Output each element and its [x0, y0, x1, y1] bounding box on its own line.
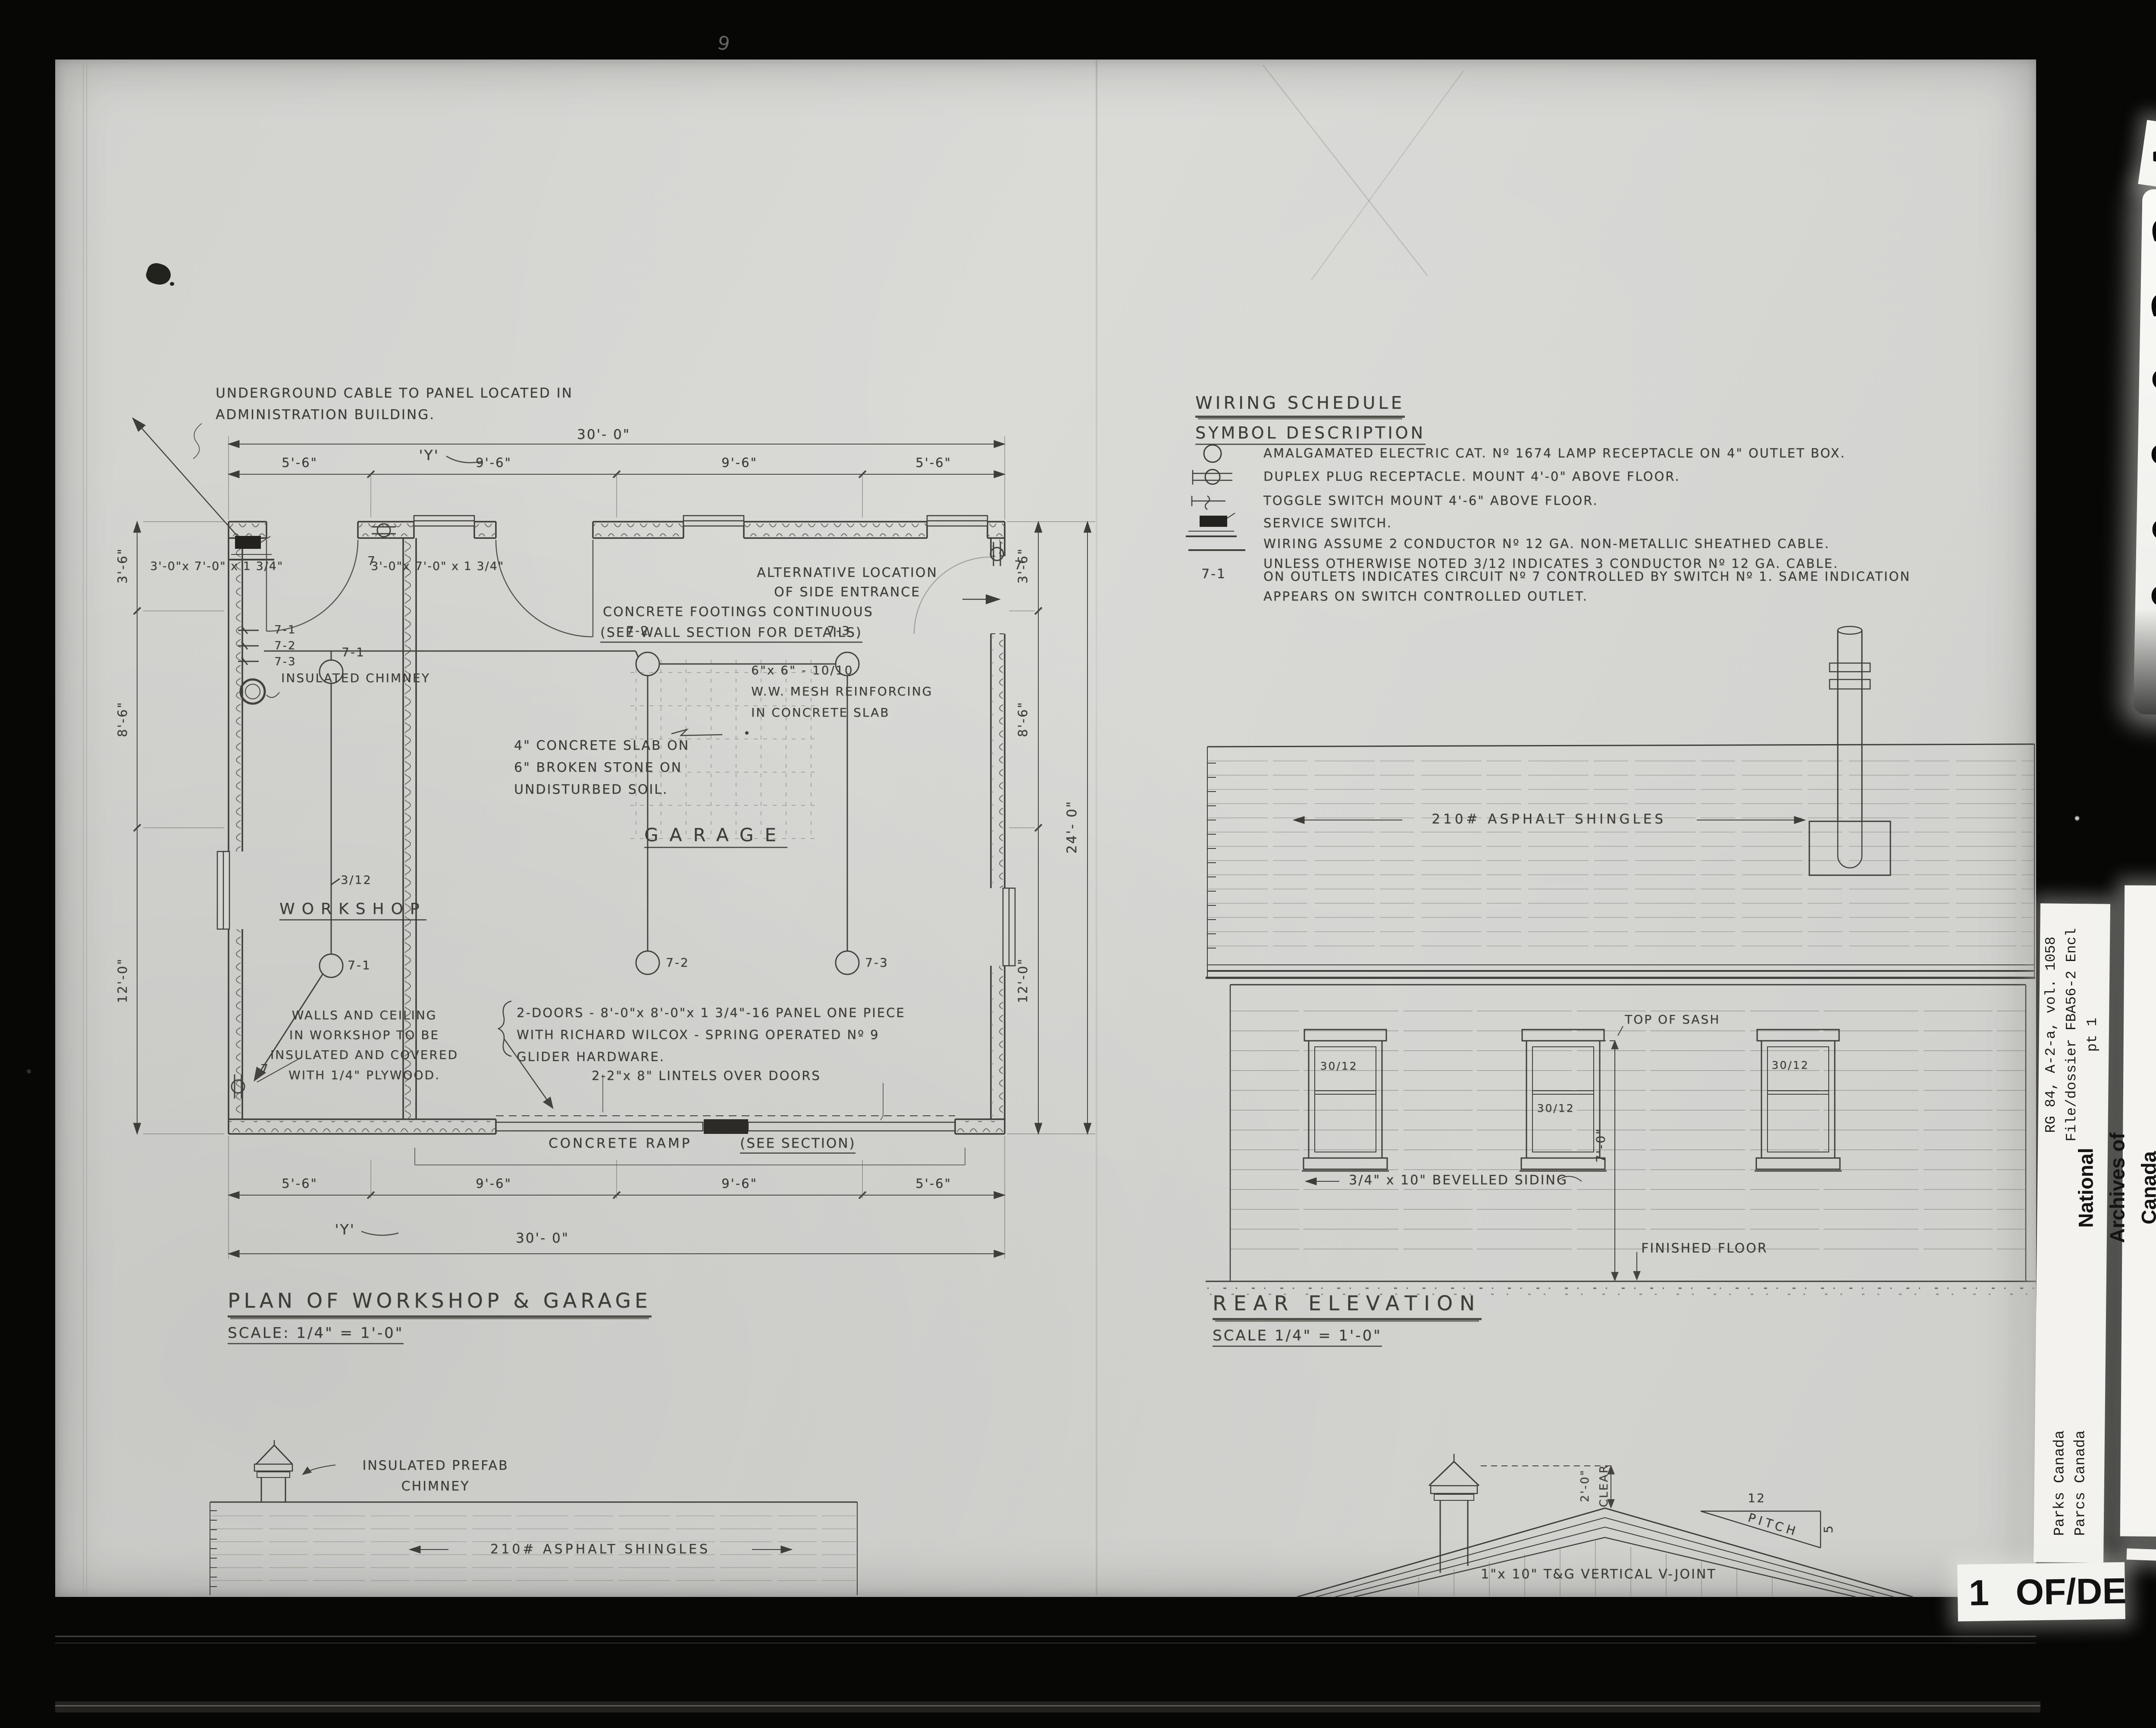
switch-label-71: 7-1	[274, 623, 296, 636]
schedule-subtitle: SYMBOL DESCRIPTION	[1195, 423, 1426, 445]
film-hairline-1	[55, 1636, 2036, 1637]
door-size-label-1: 3'-0"x 7'-0" x 1 3/4"	[150, 560, 283, 573]
rear-shingles-label: 210# ASPHALT SHINGLES	[1432, 811, 1666, 827]
dim-seg-top-2: 9'-6"	[476, 455, 512, 470]
plan-scale: SCALE: 1/4" = 1'-0"	[228, 1324, 404, 1344]
plug-label-left: 7	[260, 1061, 269, 1076]
lamp-label-73-top: 7-3	[827, 623, 851, 638]
page-number: 1	[1968, 1572, 1989, 1613]
dim-seg-bot-2: 9'-6"	[476, 1176, 512, 1191]
schedule-duplex-desc: DUPLEX PLUG RECEPTACLE. MOUNT 4'-0" ABOV…	[1263, 469, 1680, 484]
rear-finished-floor: FINISHED FLOOR	[1641, 1241, 1768, 1256]
film-band	[55, 1701, 2040, 1712]
door-size-label-2: 3'-0"x 7'-0" x 1 3/4"	[371, 560, 504, 573]
note-slab: 4" CONCRETE SLAB ON 6" BROKEN STONE ON U…	[514, 735, 689, 801]
wire-code-312: 3/12	[341, 873, 372, 887]
schedule-service-desc: SERVICE SWITCH.	[1263, 516, 1392, 530]
page-of-de-label: OF/DE	[2015, 1570, 2127, 1612]
note-footings-1: CONCRETE FOOTINGS CONTINUOUS	[603, 604, 874, 620]
frame-digit-2: 2	[2141, 289, 2156, 320]
y-reference-top: 'Y'	[419, 447, 439, 463]
gable-vjoint-label: 1"x 10" T&G VERTICAL V-JOINT	[1481, 1567, 1717, 1582]
dim-seg-bot-1: 5'-6"	[282, 1176, 318, 1191]
dim-overall-width-top: 30'- 0"	[577, 427, 630, 442]
dim-depth-a-left: 3'-6"	[115, 548, 130, 584]
dim-seg-top-1: 5'-6"	[282, 455, 318, 470]
plan-title: PLAN OF WORKSHOP & GARAGE	[228, 1289, 652, 1318]
dim-depth-b-right: 8'-6"	[1015, 701, 1030, 737]
dim-seg-bot-3: 9'-6"	[721, 1176, 758, 1191]
dim-seg-bot-4: 5'-6"	[915, 1176, 952, 1191]
rear-scale: SCALE 1/4" = 1'-0"	[1213, 1327, 1382, 1347]
dim-overall-width-bottom: 30'- 0"	[516, 1230, 569, 1246]
note-walls-ceiling: WALLS AND CEILING IN WORKSHOP TO BE INSU…	[270, 1005, 458, 1085]
side-chimney-note: INSULATED PREFAB CHIMNEY	[362, 1456, 508, 1497]
drawing-linework	[0, 0, 2156, 1728]
rear-window-label-2: 30/12	[1537, 1102, 1574, 1114]
rear-top-of-sash: TOP OF SASH	[1625, 1012, 1720, 1027]
plug-label-top: 7	[367, 554, 376, 568]
dim-depth-c-left: 12'-0"	[115, 958, 130, 1003]
microfilm-frame: UNDERGROUND CABLE TO PANEL LOCATED IN AD…	[0, 0, 2156, 1728]
lamp-label-72-bottom: 7-2	[666, 955, 689, 970]
gable-clear-dim: 2'-0" CLEAR	[1576, 1464, 1614, 1507]
side-shingles-label: 210# ASPHALT SHINGLES	[490, 1542, 710, 1557]
archive-national-label: National Archives of Canada Archives nat…	[2070, 1125, 2156, 1251]
film-band-line	[55, 1705, 2040, 1706]
note-lintels: 2-2"x 8" LINTELS OVER DOORS	[592, 1068, 821, 1083]
schedule-toggle-desc: TOGGLE SWITCH MOUNT 4'-6" ABOVE FLOOR.	[1263, 493, 1598, 508]
rear-window-label-1: 30/12	[1320, 1060, 1357, 1072]
dim-seg-top-3: 9'-6"	[721, 455, 758, 470]
note-alt-entrance: ALTERNATIVE LOCATION OF SIDE ENTRANCE	[757, 563, 938, 602]
schedule-lamp-desc: AMALGAMATED ELECTRIC CAT. Nº 1674 LAMP R…	[1263, 446, 1846, 460]
y-reference-bottom: 'Y'	[335, 1221, 355, 1238]
note-doors: 2-DOORS - 8'-0"x 8'-0"x 1 3/4"-16 PANEL …	[517, 1002, 906, 1067]
frame-digit-6: 0	[2141, 580, 2156, 611]
lamp-label-71-top: 7-1	[342, 645, 365, 659]
note-insulated-chimney: INSULATED CHIMNEY	[281, 671, 430, 685]
dim-depth-a-right: 3'-6"	[1015, 548, 1030, 584]
lamp-label-73-bottom: 7-3	[865, 955, 889, 970]
pitch-rise-label: 12	[1748, 1491, 1766, 1505]
note-ramp: CONCRETE RAMP	[548, 1136, 692, 1151]
note-underground-cable: UNDERGROUND CABLE TO PANEL LOCATED IN AD…	[216, 383, 573, 426]
dim-depth-c-right: 12'-0"	[1015, 958, 1030, 1003]
dim-depth-b-left: 8'-6"	[115, 701, 130, 737]
schedule-symbols	[1186, 445, 1245, 550]
schedule-circuit-desc: ON OUTLETS INDICATES CIRCUIT Nº 7 CONTRO…	[1263, 567, 1911, 607]
frame-digit-5: 0	[2142, 514, 2156, 545]
switch-label-72: 7-2	[274, 639, 296, 652]
room-label-workshop: WORKSHOP	[279, 900, 426, 920]
lamp-label-72-top: 7-2	[626, 623, 650, 638]
rear-siding-label: 3/4" x 10" BEVELLED SIDING	[1349, 1173, 1568, 1188]
note-mesh: 6"x 6" - 10/10 W.W. MESH REINFORCING IN …	[751, 660, 933, 723]
switch-label-73: 7-3	[274, 655, 296, 668]
film-hairline-2	[55, 1643, 2036, 1643]
dust-speck-3	[27, 1069, 31, 1074]
pitch-run-label: 5	[1821, 1525, 1836, 1534]
page-marker: 1OF/DE	[1968, 1570, 2127, 1614]
archive-rg-label: RG 84, A-2-a, vol. 1058 File/dossier FBA…	[2041, 928, 2103, 1141]
frame-digit-4: 0	[2141, 439, 2156, 470]
room-label-garage: GARAGE	[644, 824, 787, 848]
frame-letter: A	[2142, 141, 2156, 172]
side-elevation-linework	[210, 1440, 857, 1595]
rear-title: REAR ELEVATION	[1213, 1292, 1482, 1320]
schedule-circuit-code: 7-1	[1201, 567, 1226, 582]
doors-note-brace	[498, 1001, 511, 1056]
rear-wall-height: 7'-0"	[1594, 1127, 1608, 1162]
dim-seg-top-4: 5'-6"	[915, 455, 952, 470]
rear-window-label-3: 30/12	[1771, 1059, 1809, 1071]
lamp-label-71-bottom: 7-1	[348, 958, 371, 972]
schedule-title: WIRING SCHEDULE	[1195, 393, 1405, 418]
frame-digit-1: 2	[2142, 214, 2156, 245]
frame-digit-3: 0	[2142, 364, 2156, 395]
rear-elevation-linework	[1206, 626, 2040, 1294]
dust-speck-1	[2075, 816, 2079, 820]
note-ramp-see-section: (SEE SECTION)	[740, 1136, 856, 1154]
dim-overall-depth: 24'- 0"	[1064, 800, 1080, 854]
archive-parks-label: Parks Canada Parcs Canada	[2050, 1431, 2091, 1536]
